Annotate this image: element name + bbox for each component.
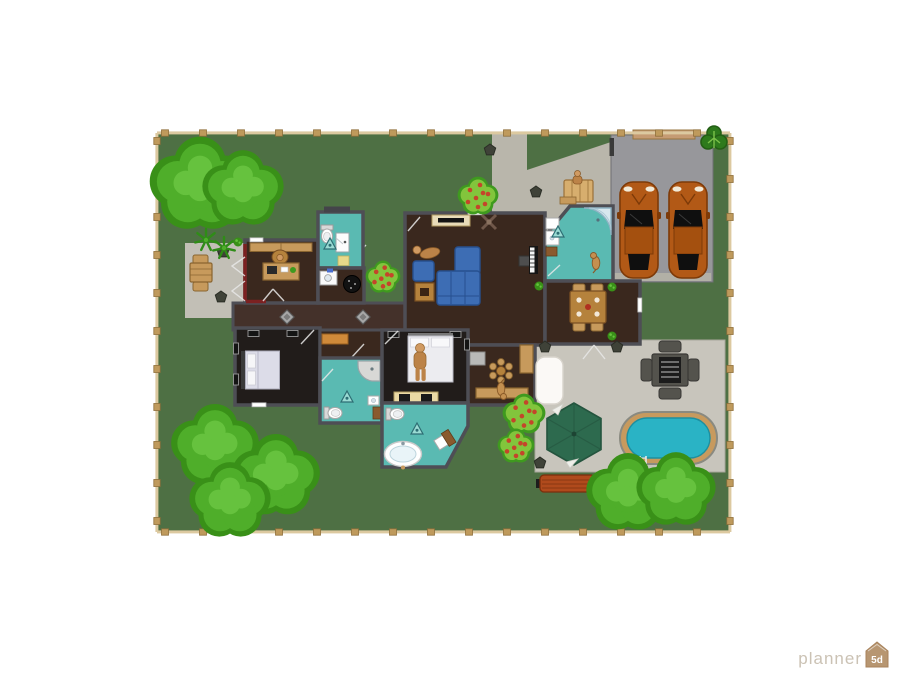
bath-mat[interactable] <box>338 256 349 266</box>
floorplan-svg: planner 5d <box>0 0 900 675</box>
potted-plant-icon[interactable] <box>535 282 544 291</box>
berry-icon <box>385 272 390 277</box>
fence-post[interactable] <box>428 130 435 136</box>
berry-icon <box>514 454 519 459</box>
watermark: planner 5d <box>798 642 888 668</box>
fence-post[interactable] <box>314 130 321 136</box>
berry-icon <box>520 414 525 419</box>
fence-post[interactable] <box>352 130 359 136</box>
berry-icon <box>523 442 528 447</box>
fence-post[interactable] <box>466 130 473 136</box>
living-room[interactable] <box>405 211 545 345</box>
bar-counter[interactable] <box>520 345 533 373</box>
berry-icon <box>387 282 392 287</box>
fence-post[interactable] <box>580 529 587 535</box>
fence-post[interactable] <box>352 529 359 535</box>
lounge-mattress[interactable] <box>536 357 563 404</box>
fence-post[interactable] <box>154 252 160 259</box>
potted-plant-icon[interactable] <box>234 238 243 247</box>
fence-post[interactable] <box>727 176 733 183</box>
fence-post[interactable] <box>276 529 283 535</box>
fence-post[interactable] <box>727 328 733 335</box>
watermark-brand: planner <box>798 649 862 668</box>
laundry-room[interactable] <box>318 268 364 303</box>
berry-icon <box>520 451 525 456</box>
berry-icon <box>478 183 483 188</box>
berry-icon <box>381 284 386 289</box>
fence-post[interactable] <box>656 529 663 535</box>
bathroom-north[interactable] <box>318 207 363 269</box>
car[interactable] <box>617 182 661 278</box>
fence-post[interactable] <box>390 529 397 535</box>
berry-icon <box>522 423 527 428</box>
berry-icon <box>529 420 534 425</box>
berry-icon <box>466 200 471 205</box>
berry-icon <box>389 273 394 278</box>
fence-post[interactable] <box>542 130 549 136</box>
bedroom-west[interactable] <box>234 328 321 407</box>
fence-post[interactable] <box>466 529 473 535</box>
fence-post[interactable] <box>727 252 733 259</box>
beanbag[interactable] <box>344 276 361 293</box>
fence-post[interactable] <box>154 404 160 411</box>
watermark-badge-label: 5d <box>871 655 883 666</box>
bedroom-corridor <box>320 330 382 358</box>
fence-post[interactable] <box>727 290 733 297</box>
berry-icon <box>518 441 523 446</box>
armchair[interactable] <box>413 261 434 281</box>
berry-icon <box>524 400 529 405</box>
bedroom-east[interactable] <box>382 330 470 405</box>
berry-icon <box>507 438 512 443</box>
fence-post[interactable] <box>154 138 160 145</box>
person-at-table[interactable] <box>573 171 582 185</box>
fence-post[interactable] <box>727 366 733 373</box>
wall-shelf[interactable] <box>560 197 576 204</box>
fence-post[interactable] <box>504 130 511 136</box>
fence-post[interactable] <box>154 366 160 373</box>
fence-post[interactable] <box>694 529 701 535</box>
fence-post[interactable] <box>727 518 733 525</box>
fence-post[interactable] <box>154 442 160 449</box>
fence-post[interactable] <box>276 130 283 136</box>
berry-icon <box>483 202 488 207</box>
double-bed[interactable] <box>408 333 453 382</box>
potted-plant-icon[interactable] <box>608 283 617 292</box>
fence-post[interactable] <box>504 529 511 535</box>
fence-post[interactable] <box>656 130 663 136</box>
berry-icon <box>512 446 517 451</box>
fence-post[interactable] <box>727 442 733 449</box>
toilet[interactable] <box>386 408 404 420</box>
berry-icon <box>527 409 532 414</box>
berry-icon <box>516 434 521 439</box>
double-bed[interactable] <box>241 351 280 389</box>
fence-post[interactable] <box>154 518 160 525</box>
fence-post[interactable] <box>154 328 160 335</box>
berry-icon <box>505 449 510 454</box>
piano[interactable] <box>529 246 538 274</box>
fence-post[interactable] <box>154 290 160 297</box>
fence-post[interactable] <box>162 130 169 136</box>
fence-post[interactable] <box>428 529 435 535</box>
fireplace[interactable] <box>519 256 530 266</box>
berry-icon <box>513 405 518 410</box>
berry-icon <box>468 188 473 193</box>
fence-post[interactable] <box>200 130 207 136</box>
berry-icon <box>379 276 384 281</box>
fence-post[interactable] <box>154 214 160 221</box>
fence-post[interactable] <box>390 130 397 136</box>
dresser-orange[interactable] <box>322 334 348 344</box>
tv-console[interactable] <box>432 215 470 226</box>
fence-post[interactable] <box>694 130 701 136</box>
fence-post[interactable] <box>542 529 549 535</box>
berry-icon <box>532 410 537 415</box>
fence-post[interactable] <box>727 480 733 487</box>
berry-icon <box>382 265 387 270</box>
fence-post[interactable] <box>162 529 169 535</box>
car[interactable] <box>666 182 710 278</box>
shower-cabin[interactable] <box>336 233 349 252</box>
stove[interactable] <box>470 352 485 365</box>
berry-icon <box>372 280 377 285</box>
small-tree[interactable] <box>701 126 727 149</box>
floorplan-canvas: planner 5d <box>0 0 900 675</box>
toilet[interactable] <box>324 407 342 419</box>
potted-plant-icon[interactable] <box>608 332 617 341</box>
fence-post[interactable] <box>618 130 625 136</box>
fence-post[interactable] <box>727 214 733 221</box>
fence-post[interactable] <box>154 480 160 487</box>
fence-post[interactable] <box>727 404 733 411</box>
berry-icon <box>486 192 491 197</box>
fence-post[interactable] <box>314 529 321 535</box>
fence-post[interactable] <box>238 130 245 136</box>
fence-post[interactable] <box>580 130 587 136</box>
garage-door[interactable] <box>633 130 695 139</box>
fence-post[interactable] <box>618 529 625 535</box>
berry-icon <box>474 196 479 201</box>
bathroom-middle[interactable] <box>320 358 382 423</box>
hallway-floor[interactable] <box>233 303 405 330</box>
berry-icon <box>481 191 486 196</box>
berry-icon <box>374 270 379 275</box>
garage[interactable] <box>610 130 714 295</box>
coffee-table[interactable] <box>415 283 434 301</box>
watermark-badge-icon: 5d <box>866 642 888 667</box>
washing-machine[interactable] <box>320 269 337 286</box>
berry-icon <box>476 205 481 210</box>
berry-icon <box>511 418 516 423</box>
fence-post[interactable] <box>727 138 733 145</box>
bathroom-sink[interactable] <box>368 396 379 405</box>
